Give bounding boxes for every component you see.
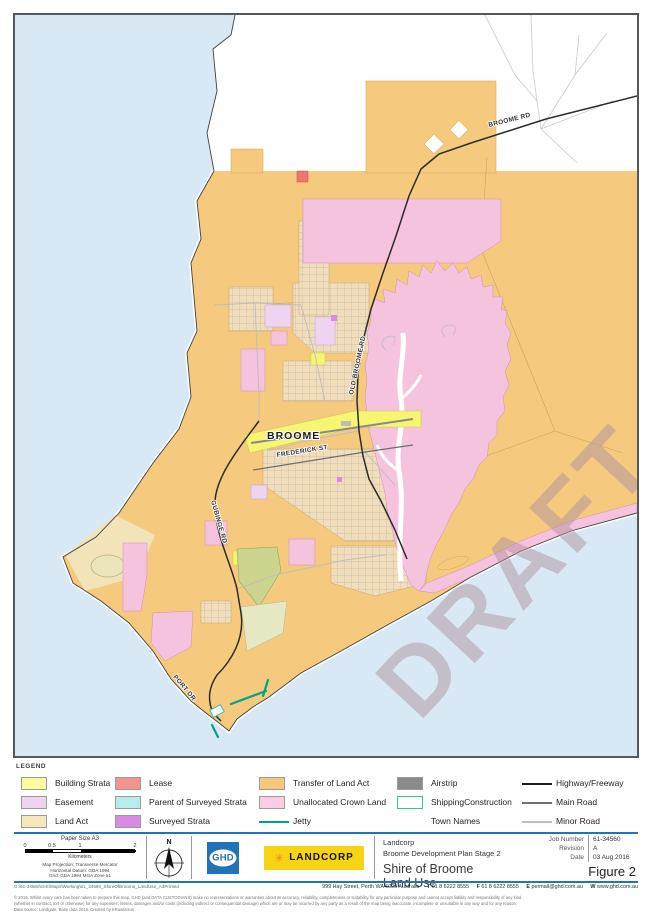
landcorp-starburst-icon: ✳	[274, 852, 284, 864]
pink-parcel-6	[271, 331, 287, 345]
broome-land-use-map: DRAFT BROOME BROOME RD OLD BROOME RD FRE…	[15, 15, 637, 756]
parcel-lines-unmapped	[485, 15, 613, 163]
footer: G:\61-34560\GIS\Maps\Working\61_34560_Sh…	[14, 884, 638, 890]
email-label: E	[526, 884, 530, 890]
scale-block: Paper Size A3 0 0.5 1 2 Kilometers Map P…	[14, 835, 146, 880]
pink-parcel-3	[289, 539, 315, 565]
map-title-line1: Shire of Broome	[383, 862, 542, 876]
lease-parcel	[297, 171, 308, 182]
paper-size: Paper Size A3	[14, 836, 146, 842]
project-name: Broome Development Plan Stage 2	[383, 849, 542, 858]
revision-label: Revision	[542, 845, 588, 852]
scale-unit: Kilometers	[14, 854, 146, 860]
ghd-logo-block: GHD	[192, 835, 254, 880]
date-value: 03 Aug 2016	[588, 853, 630, 862]
surveyed-strata-swatch	[115, 815, 141, 828]
job-number-label: Job Number	[542, 836, 588, 843]
north-arrow: N	[151, 836, 187, 880]
svg-text:N: N	[166, 839, 171, 846]
file-path: G:\61-34560\GIS\Maps\Working\61_34560_Sh…	[14, 884, 179, 889]
airstrip-swatch	[397, 777, 423, 790]
shipping-construction-swatch	[397, 796, 423, 809]
client-name: Landcorp	[383, 838, 542, 847]
jetty-line-swatch	[259, 821, 289, 823]
golf-green-oval	[91, 555, 125, 577]
divider-top	[14, 832, 638, 834]
legend-title: LEGEND	[16, 763, 46, 770]
date-label: Date	[542, 854, 588, 861]
map-frame: DRAFT BROOME BROOME RD OLD BROOME RD FRE…	[13, 13, 639, 758]
surveyed-strata-parcel	[331, 315, 337, 321]
building-strata-swatch	[21, 777, 47, 790]
town-label-broome: BROOME	[267, 430, 320, 442]
projection-info: Map Projection: Transverse Mercator Hori…	[14, 862, 146, 879]
parent-surveyed-strata-swatch	[115, 796, 141, 809]
landcorp-logo: ✳ LANDCORP	[264, 846, 364, 870]
contact-line: 999 Hay Street, Perth WA 6000 Australia …	[322, 884, 638, 890]
easement-swatch	[21, 796, 47, 809]
highway-line-swatch	[522, 783, 552, 785]
figure-number: Figure 2	[588, 864, 636, 879]
surveyed-strata-parcel-2	[337, 477, 342, 482]
project-text-block: Landcorp Broome Development Plan Stage 2…	[375, 835, 542, 880]
fax-label: F	[477, 884, 480, 890]
legend: Building Strata Lease Transfer of Land A…	[14, 777, 638, 831]
revision-value: A	[588, 844, 597, 853]
landcorp-logo-block: ✳ LANDCORP	[254, 835, 374, 880]
north-arrow-block: N	[147, 835, 191, 880]
address: 999 Hay Street, Perth WA 6000 Australia	[322, 884, 419, 890]
main-road-line-swatch	[522, 802, 552, 804]
disclaimer: © 2016. Whilst every care has been taken…	[14, 895, 638, 913]
pink-block-north	[303, 199, 501, 263]
pink-parcel-5	[241, 349, 265, 391]
title-block: Paper Size A3 0 0.5 1 2 Kilometers Map P…	[14, 835, 638, 880]
divider-bottom	[14, 881, 638, 883]
web-label: W	[590, 884, 595, 890]
land-act-swatch	[21, 815, 47, 828]
minor-road-line-swatch	[522, 821, 552, 823]
map-figure-page: DRAFT BROOME BROOME RD OLD BROOME RD FRE…	[0, 0, 652, 922]
lease-swatch	[115, 777, 141, 790]
phone-label: T	[427, 884, 430, 890]
unallocated-crown-land-swatch	[259, 796, 285, 809]
disclaimer-line3: Data source: Landgate, Base data 2016. C…	[14, 907, 638, 913]
ghd-logo: GHD	[207, 842, 239, 874]
scale-bar	[25, 849, 135, 853]
job-info-block: Job Number61-34560 RevisionA Date03 Aug …	[542, 835, 638, 880]
job-number-value: 61-34560	[588, 835, 620, 844]
transfer-of-land-act-swatch	[259, 777, 285, 790]
